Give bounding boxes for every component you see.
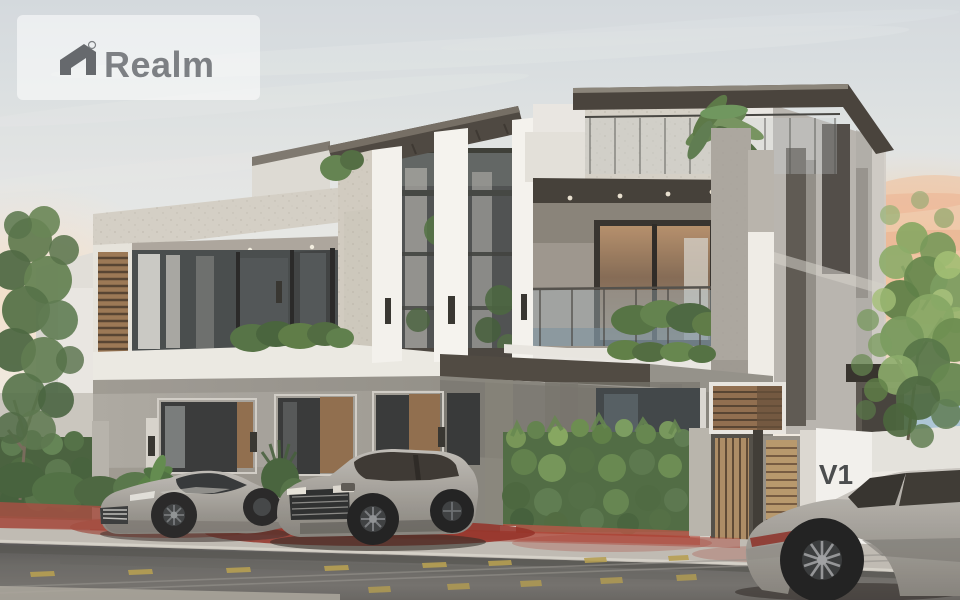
- svg-text:Realm: Realm: [104, 44, 215, 85]
